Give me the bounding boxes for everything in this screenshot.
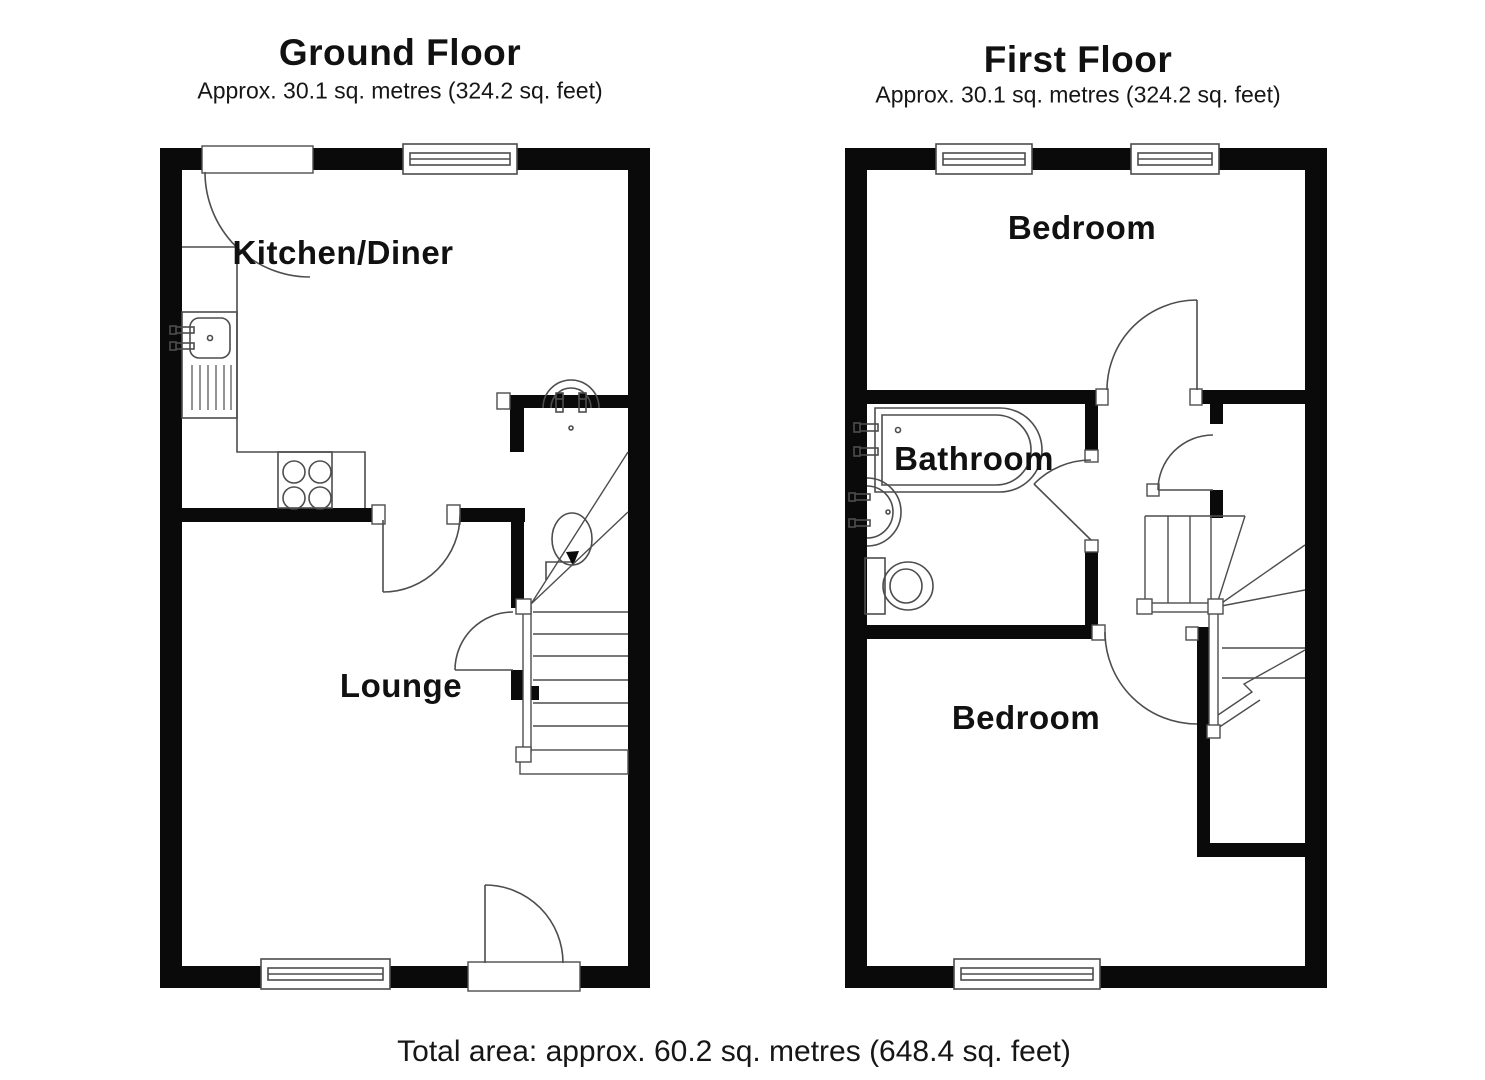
ground-floor-walls [160, 148, 650, 988]
kitchen-counter [182, 247, 365, 508]
door-arc [485, 885, 563, 963]
room-label-lounge: Lounge [340, 667, 462, 705]
door-arc [1107, 300, 1197, 390]
door-arc [455, 612, 513, 670]
room-label-bedroom-back: Bedroom [952, 699, 1100, 737]
room-label-bedroom-front: Bedroom [1008, 209, 1156, 247]
window [1131, 144, 1219, 174]
window [954, 959, 1100, 989]
toilet-icon [865, 558, 933, 614]
ground-floor-area: Approx. 30.1 sq. metres (324.2 sq. feet) [197, 78, 602, 105]
total-area-label: Total area: approx. 60.2 sq. metres (648… [397, 1035, 1071, 1069]
first-floor-area: Approx. 30.1 sq. metres (324.2 sq. feet) [875, 82, 1280, 109]
door-arc [1158, 435, 1213, 490]
kitchen-fixtures [170, 247, 365, 509]
floorplan-drawing [0, 0, 1485, 1080]
doors [205, 172, 1213, 963]
window [936, 144, 1032, 174]
window [403, 144, 517, 174]
ground-floor-stairs [516, 452, 628, 774]
window [261, 959, 390, 989]
door-jambs [202, 146, 1202, 991]
first-floor-stairs [1137, 516, 1305, 738]
floorplan-page: Ground Floor Approx. 30.1 sq. metres (32… [0, 0, 1485, 1080]
cloakroom-fixtures [543, 380, 599, 580]
bathroom-fixtures [849, 408, 1042, 614]
room-label-kitchen: Kitchen/Diner [232, 234, 453, 272]
door-arc [1105, 632, 1197, 724]
hob-icon [278, 452, 332, 509]
room-label-bathroom: Bathroom [894, 440, 1054, 478]
door-arc [383, 515, 460, 592]
first-floor-title: First Floor [984, 39, 1172, 81]
ground-floor-title: Ground Floor [279, 32, 521, 74]
first-floor-walls [845, 148, 1327, 988]
